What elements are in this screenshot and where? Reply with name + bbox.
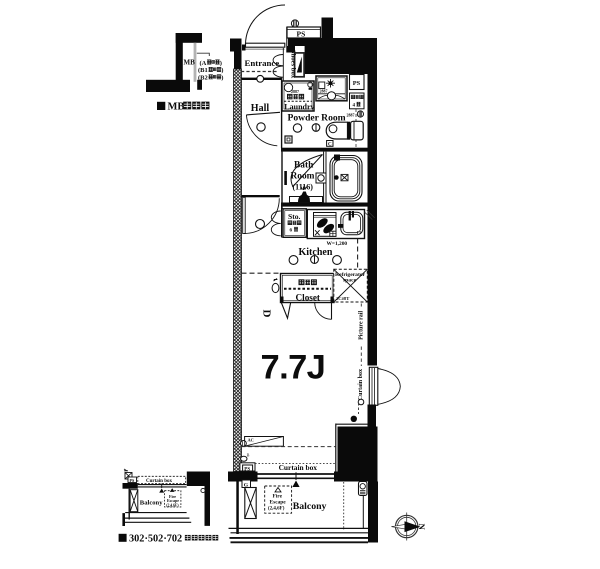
- svg-text:D: D: [261, 310, 273, 318]
- svg-text:Balcony: Balcony: [140, 499, 163, 506]
- svg-text:PS: PS: [297, 30, 306, 39]
- svg-text:MB: MB: [184, 59, 196, 67]
- svg-text:(2,4,6F): (2,4,6F): [166, 504, 179, 508]
- svg-text:302·502·702: 302·502·702: [129, 534, 182, 545]
- svg-text:6: 6: [290, 228, 293, 234]
- svg-text:2887: 2887: [291, 89, 299, 94]
- svg-text:Balcony: Balcony: [293, 501, 327, 512]
- svg-text:MB: MB: [168, 102, 185, 113]
- svg-text:2887: 2887: [347, 112, 355, 117]
- svg-text:Curtain box: Curtain box: [146, 479, 172, 484]
- svg-text:Picture rail: Picture rail: [359, 311, 365, 340]
- svg-text:PS: PS: [353, 80, 361, 87]
- svg-text:): ): [221, 67, 223, 74]
- svg-text:2887: 2887: [320, 89, 328, 94]
- svg-text:Laundry: Laundry: [284, 103, 314, 112]
- svg-text:Escape: Escape: [167, 498, 179, 503]
- svg-text:2C#8T: 2C#8T: [336, 296, 349, 301]
- svg-text:Sto.: Sto.: [288, 212, 301, 221]
- svg-text:C: C: [328, 143, 332, 148]
- svg-text:12: 12: [357, 230, 362, 235]
- svg-text:Curtain box: Curtain box: [358, 369, 364, 400]
- svg-text:Hall: Hall: [251, 103, 270, 114]
- svg-text:(A: (A: [200, 60, 207, 67]
- svg-text:AC: AC: [248, 438, 254, 443]
- svg-text:Curtain box: Curtain box: [279, 463, 318, 472]
- svg-text:B: B: [247, 453, 250, 458]
- svg-text:Escape: Escape: [270, 499, 287, 505]
- svg-text:space: space: [343, 278, 357, 284]
- svg-text:PS: PS: [130, 478, 135, 483]
- svg-text:(B2: (B2: [198, 75, 208, 82]
- svg-text:(B1: (B1: [198, 67, 208, 74]
- svg-text:): ): [221, 75, 223, 82]
- svg-text:): ): [220, 60, 222, 67]
- svg-text:N: N: [417, 524, 427, 531]
- svg-text:(2,4,6F): (2,4,6F): [268, 507, 285, 512]
- svg-text:Closet: Closet: [296, 292, 321, 302]
- svg-text:7.7J: 7.7J: [261, 349, 326, 387]
- svg-text:Shoes box: Shoes box: [289, 50, 296, 79]
